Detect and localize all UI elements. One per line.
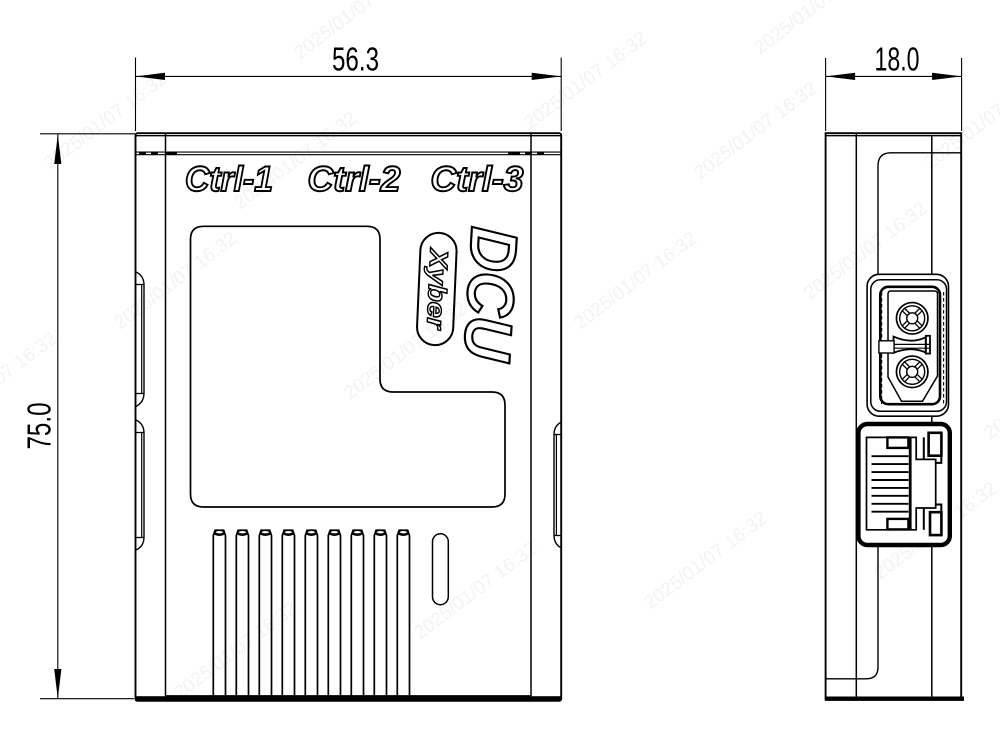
svg-text:Xyber: Xyber: [421, 246, 453, 332]
svg-text:Ctrl-2: Ctrl-2: [308, 160, 402, 199]
svg-text:Ctrl-3: Ctrl-3: [431, 160, 525, 199]
svg-text:DCU: DCU: [450, 225, 532, 365]
svg-text:56.3: 56.3: [332, 41, 379, 78]
svg-text:Ctrl-1: Ctrl-1: [185, 160, 273, 199]
svg-text:18.0: 18.0: [875, 41, 920, 78]
svg-text:75.0: 75.0: [20, 403, 57, 450]
